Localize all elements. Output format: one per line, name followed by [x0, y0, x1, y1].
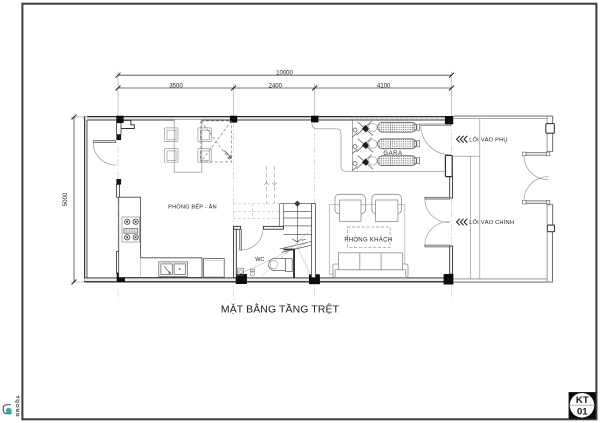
svg-text:KT: KT: [576, 395, 589, 406]
svg-text:LỐI VÀO PHỤ: LỐI VÀO PHỤ: [469, 136, 508, 143]
svg-text:PHÒNG BẾP - ĂN: PHÒNG BẾP - ĂN: [168, 203, 217, 210]
svg-text:4100: 4100: [377, 83, 391, 89]
svg-text:10000: 10000: [276, 71, 293, 77]
svg-text:WC: WC: [255, 257, 264, 263]
svg-text:01: 01: [577, 406, 588, 417]
svg-text:3500: 3500: [169, 83, 183, 89]
svg-text:2400: 2400: [269, 83, 283, 89]
svg-text:PHÒNG KHÁCH: PHÒNG KHÁCH: [344, 237, 392, 244]
svg-text:MẶT BẰNG TẦNG TRỆT: MẶT BẰNG TẦNG TRỆT: [221, 303, 340, 316]
svg-text:5000: 5000: [63, 192, 69, 206]
svg-text:GARA: GARA: [383, 151, 402, 157]
svg-text:LỐI VÀO CHÍNH: LỐI VÀO CHÍNH: [469, 219, 514, 226]
